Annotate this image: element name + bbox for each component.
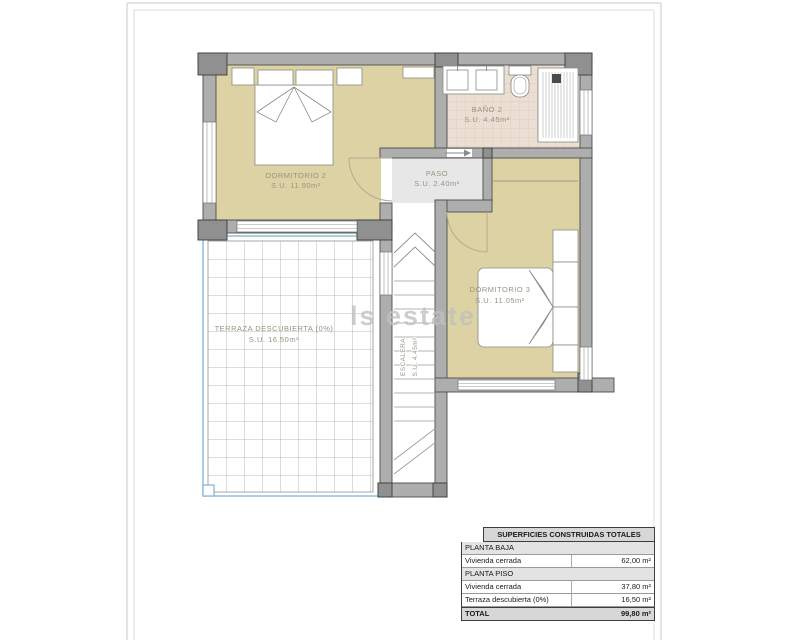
- shower-drain: [552, 74, 561, 83]
- table-row-planta-baja: PLANTA BAJA: [462, 542, 654, 555]
- row-value: 37,80 m²: [572, 581, 654, 593]
- page: DORMITORIO 2 S.U. 11.90m² BAÑO 2 S.U. 4.…: [0, 0, 800, 640]
- sink: [447, 70, 468, 90]
- surfaces-table: SUPERFICIES CONSTRUIDAS TOTALES PLANTA B…: [461, 527, 655, 621]
- table-row-total: TOTAL 99,80 m²: [462, 607, 654, 620]
- shelf: [403, 67, 434, 78]
- terraza-area: S.U. 16.50m²: [249, 335, 299, 344]
- table-row-planta-piso: PLANTA PISO: [462, 568, 654, 581]
- sink: [476, 70, 497, 90]
- surfaces-table-title: SUPERFICIES CONSTRUIDAS TOTALES: [483, 527, 655, 542]
- escalera-label: ESCALERA: [400, 338, 407, 376]
- bano2-area: S.U. 4.45m²: [464, 115, 510, 124]
- row-value: 99,80 m²: [571, 608, 654, 620]
- terrace-drain: [203, 485, 214, 496]
- floor-plan: DORMITORIO 2 S.U. 11.90m² BAÑO 2 S.U. 4.…: [0, 0, 800, 640]
- nightstand: [553, 345, 578, 372]
- terrace: [203, 236, 389, 496]
- window-stair: [380, 252, 392, 295]
- bed-body: [478, 268, 553, 347]
- row-label: Terraza descubierta (0%): [462, 594, 572, 606]
- dormitorio3-label: DORMITORIO 3: [470, 285, 531, 294]
- dormitorio2-label: DORMITORIO 2: [266, 171, 327, 180]
- pillow: [553, 307, 578, 345]
- window-bath: [580, 90, 592, 135]
- window-dorm3-bottom: [458, 380, 555, 390]
- paso-area: S.U. 2.40m²: [414, 179, 460, 188]
- row-label: Vivienda cerrada: [462, 555, 572, 567]
- window-terrace: [237, 221, 357, 232]
- row-value: 62,00 m²: [572, 555, 654, 567]
- toilet-tank: [509, 66, 531, 75]
- door-bath-opening: [445, 149, 472, 157]
- table-row-vivienda-baja: Vivienda cerrada 62,00 m²: [462, 555, 654, 568]
- row-label: PLANTA BAJA: [462, 542, 654, 554]
- bed-body: [255, 85, 333, 165]
- dormitorio3-area: S.U. 11.05m²: [475, 296, 525, 305]
- bano2-label: BAÑO 2: [472, 105, 503, 114]
- dormitorio2-area: S.U. 11.90m²: [271, 181, 321, 190]
- paso-label: PASO: [426, 169, 448, 178]
- pillow: [553, 262, 578, 307]
- surfaces-table-body: PLANTA BAJA Vivienda cerrada 62,00 m² PL…: [461, 542, 655, 621]
- watermark: ls estate: [350, 301, 476, 331]
- pillow: [296, 70, 333, 85]
- table-row-terraza: Terraza descubierta (0%) 16,50 m²: [462, 594, 654, 607]
- nightstand-left: [232, 68, 254, 85]
- terraza-label: TERRAZA DESCUBIERTA (0%): [215, 324, 334, 333]
- window-dorm3-right: [580, 347, 592, 380]
- row-label: PLANTA PISO: [462, 568, 654, 580]
- table-row-vivienda-piso: Vivienda cerrada 37,80 m²: [462, 581, 654, 594]
- pillow: [258, 70, 293, 85]
- row-label: TOTAL: [462, 608, 571, 620]
- escalera-area: S.U. 4.45m²: [412, 337, 419, 377]
- nightstand-right: [337, 68, 362, 85]
- row-value: 16,50 m²: [572, 594, 654, 606]
- row-label: Vivienda cerrada: [462, 581, 572, 593]
- window-left: [203, 122, 216, 203]
- wardrobe: [553, 230, 578, 262]
